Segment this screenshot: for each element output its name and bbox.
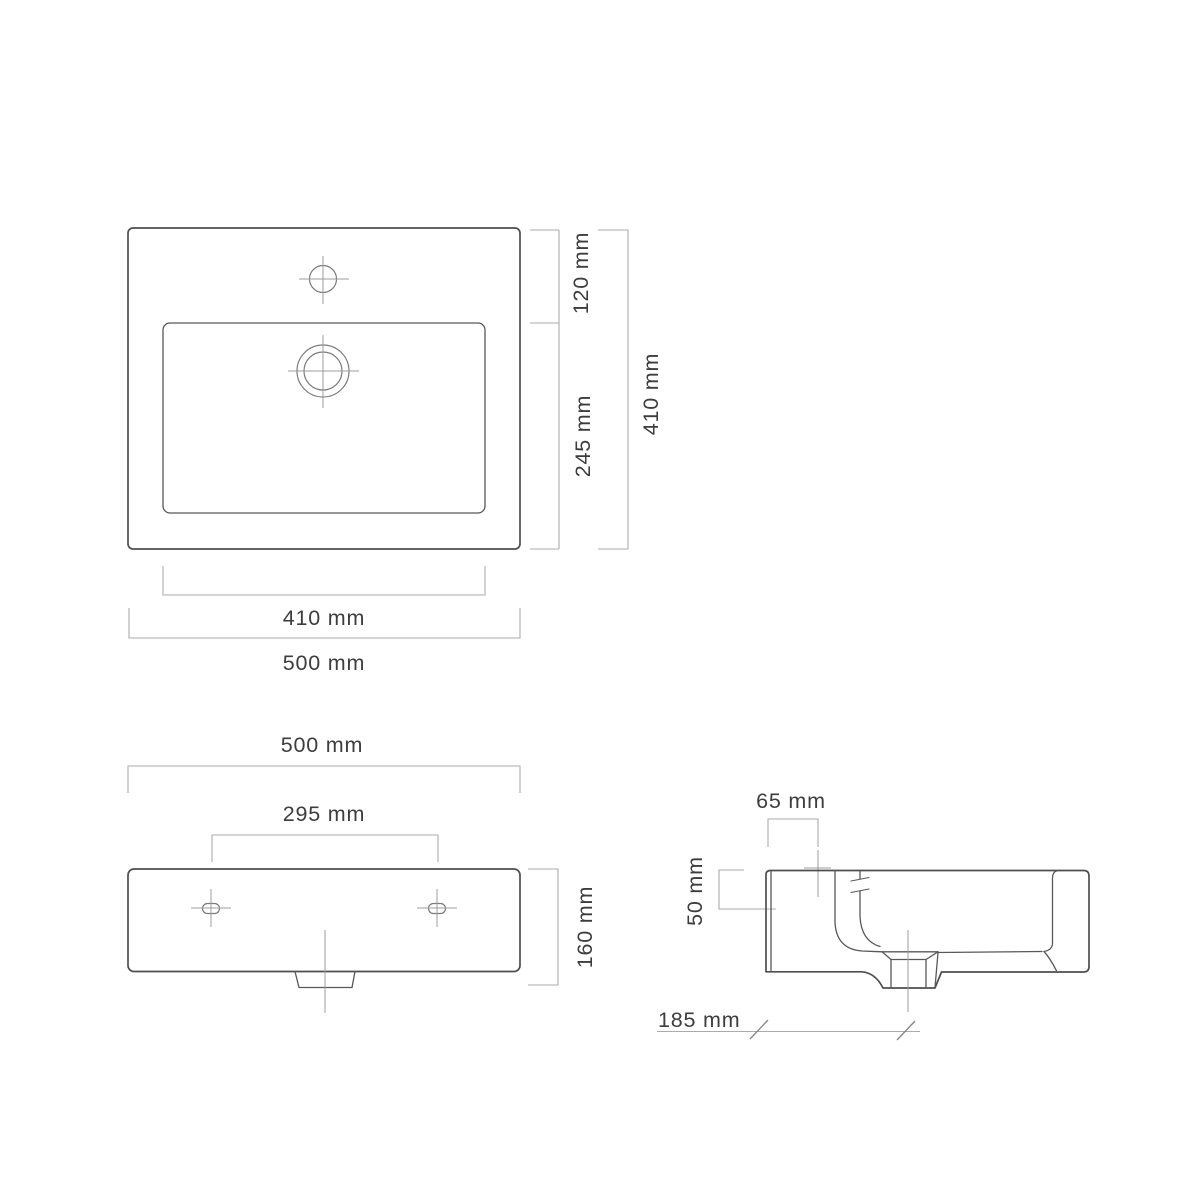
side-view-drain-trap: [882, 952, 938, 988]
washbasin-technical-drawing: 120 mm 245 mm 410 mm 410 mm 500 mm 500 m…: [0, 0, 1200, 1200]
drain-hole-crosshair: [288, 335, 359, 408]
front-view-body: [128, 869, 520, 972]
dimension-label-back-depth: 120 mm: [569, 232, 593, 314]
section-break-ticks: [851, 878, 869, 893]
dimension-label-overall-width: 500 mm: [283, 651, 365, 675]
drawing-canvas: 120 mm 245 mm 410 mm 410 mm 500 mm 500 m…: [0, 0, 1200, 1200]
dimension-slash-ticks: [750, 1020, 915, 1040]
dimension-label-drain-offset: 185 mm: [658, 1008, 740, 1032]
faucet-hole-crosshair: [299, 256, 349, 304]
top-view-outer-rim: [128, 228, 520, 549]
dimension-bracket-overall-depth: [598, 230, 628, 549]
dimension-label-hole-spacing: 295 mm: [283, 802, 365, 826]
dimension-label-basin-depth: 245 mm: [571, 395, 595, 477]
dimension-bracket-faucet-offset: [768, 819, 818, 847]
dimension-label-faucet-offset: 65 mm: [756, 789, 826, 813]
dimension-label-front-height: 160 mm: [573, 886, 597, 968]
front-view: 500 mm 295 mm 160 mm: [128, 733, 597, 1013]
side-view-basin-section: [835, 871, 1057, 971]
dimension-bracket-depth-split: [530, 230, 559, 549]
top-view: 120 mm 245 mm 410 mm 410 mm 500 mm: [128, 228, 663, 675]
mounting-hole-right-crosshair: [417, 889, 457, 927]
side-faucet-center-mark: [804, 850, 831, 897]
dimension-bracket-front-height: [528, 869, 558, 985]
dimension-bracket-front-width: [128, 766, 520, 793]
dimension-label-front-width: 500 mm: [281, 733, 363, 757]
mounting-hole-left-crosshair: [191, 889, 231, 927]
dimension-label-overall-depth: 410 mm: [639, 353, 663, 435]
side-view-body-outline: [766, 871, 1089, 989]
dimension-label-mount-depth: 50 mm: [683, 856, 707, 926]
dimension-bracket-hole-spacing: [212, 835, 438, 862]
side-view: 65 mm 50 mm: [657, 789, 1089, 1040]
dimension-bracket-basin-width: [163, 566, 485, 595]
dimension-bracket-mount-depth: [719, 870, 776, 909]
dimension-label-basin-width: 410 mm: [283, 606, 365, 630]
